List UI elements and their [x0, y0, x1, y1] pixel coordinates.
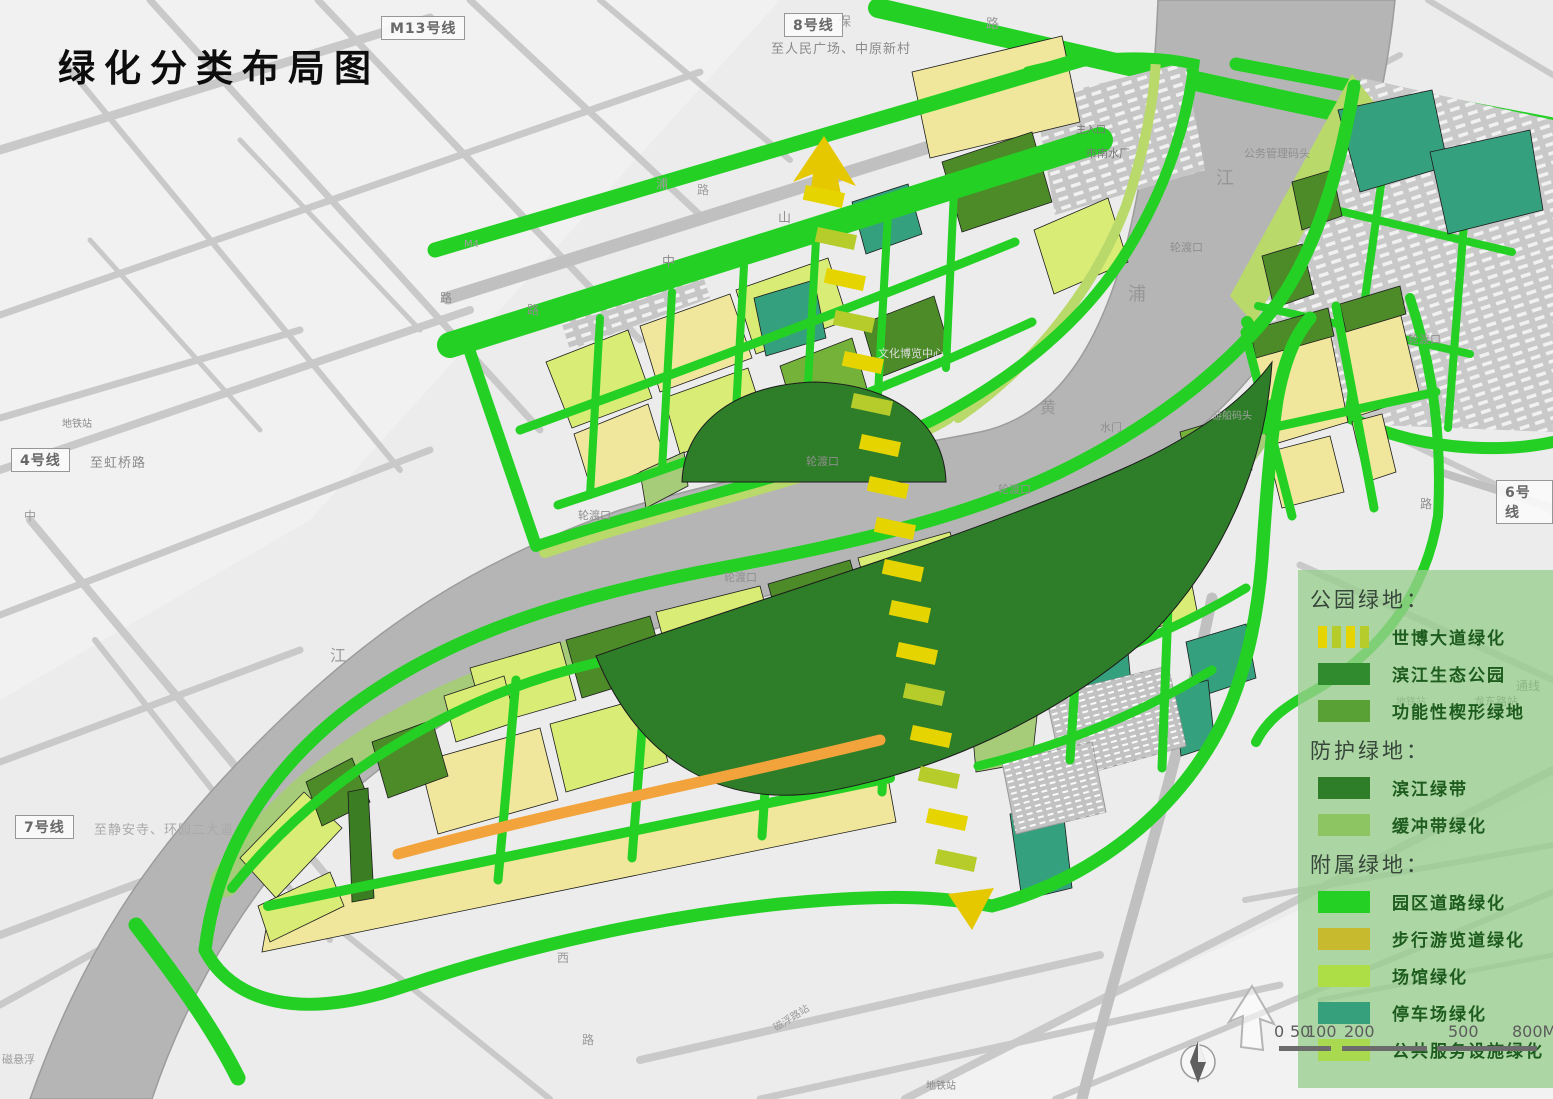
legend-swatch [1318, 814, 1370, 836]
legend-group-header: 防护绿地： [1310, 735, 1547, 765]
legend-item-label: 园区道路绿化 [1392, 889, 1506, 914]
legend-swatch [1318, 965, 1370, 987]
legend-swatch [1318, 928, 1370, 950]
legend-swatch [1318, 663, 1370, 685]
legend-item: 功能性楔形绿地 [1318, 698, 1547, 723]
legend-group-header: 附属绿地： [1310, 849, 1547, 879]
legend-item-label: 场馆绿化 [1392, 963, 1468, 988]
legend-swatch [1318, 700, 1370, 722]
legend-swatch [1318, 891, 1370, 913]
legend-item: 缓冲带绿化 [1318, 812, 1547, 837]
legend-item: 滨江生态公园 [1318, 661, 1547, 686]
legend-item: 滨江绿带 [1318, 775, 1547, 800]
legend-item-label: 公共服务设施绿化 [1392, 1037, 1544, 1062]
legend-item-label: 世博大道绿化 [1392, 624, 1506, 649]
legend-item: 公共服务设施绿化 [1318, 1037, 1547, 1062]
legend-item: 世博大道绿化 [1318, 624, 1547, 649]
expo-greening-plan-map: 绿化分类布局图 保路江浦黄江轮渡口轮渡口轮渡口轮渡口轮渡口轮渡口水门游船码头文化… [0, 0, 1553, 1099]
legend-swatch [1318, 777, 1370, 799]
legend-item-label: 缓冲带绿化 [1392, 812, 1487, 837]
legend-item: 步行游览道绿化 [1318, 926, 1547, 951]
legend-item: 园区道路绿化 [1318, 889, 1547, 914]
legend-item-label: 滨江绿带 [1392, 775, 1468, 800]
legend-item: 停车场绿化 [1318, 1000, 1547, 1025]
legend-item-label: 功能性楔形绿地 [1392, 698, 1525, 723]
page-title: 绿化分类布局图 [58, 38, 380, 92]
legend-panel: 公园绿地：世博大道绿化滨江生态公园功能性楔形绿地防护绿地：滨江绿带缓冲带绿化附属… [1298, 570, 1553, 1088]
legend-item-label: 步行游览道绿化 [1392, 926, 1525, 951]
legend-item: 场馆绿化 [1318, 963, 1547, 988]
legend-item-label: 停车场绿化 [1392, 1000, 1487, 1025]
legend-swatch [1318, 1039, 1370, 1061]
legend-group-header: 公园绿地： [1310, 584, 1547, 614]
legend-swatch [1318, 1002, 1370, 1024]
legend-swatch-dashed [1318, 626, 1370, 648]
legend-item-label: 滨江生态公园 [1392, 661, 1506, 686]
